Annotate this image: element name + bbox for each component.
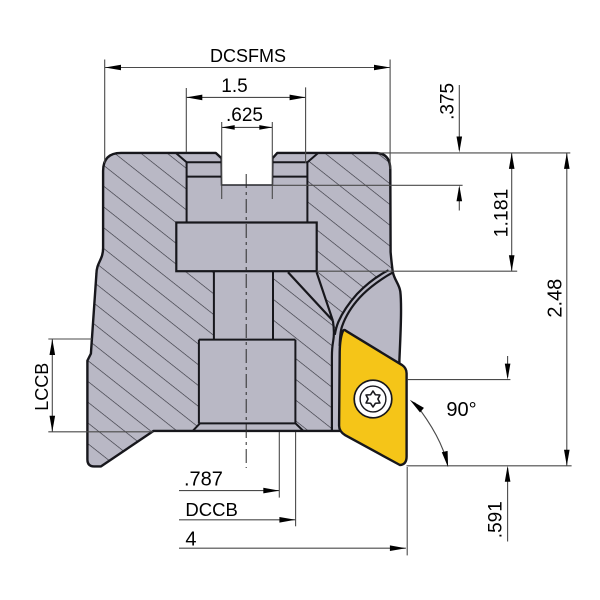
svg-text:.375: .375 xyxy=(438,83,459,120)
svg-text:.787: .787 xyxy=(184,469,223,491)
svg-text:.591: .591 xyxy=(485,501,506,538)
svg-text:2.48: 2.48 xyxy=(545,279,567,318)
svg-text:1.5: 1.5 xyxy=(221,76,247,97)
svg-text:1.181: 1.181 xyxy=(491,189,513,238)
svg-text:4: 4 xyxy=(185,529,196,551)
svg-text:LCCB: LCCB xyxy=(32,363,52,411)
svg-text:DCCB: DCCB xyxy=(185,499,237,520)
svg-text:90°: 90° xyxy=(446,399,476,421)
svg-text:.625: .625 xyxy=(226,105,263,126)
svg-text:DCSFMS: DCSFMS xyxy=(210,46,286,66)
